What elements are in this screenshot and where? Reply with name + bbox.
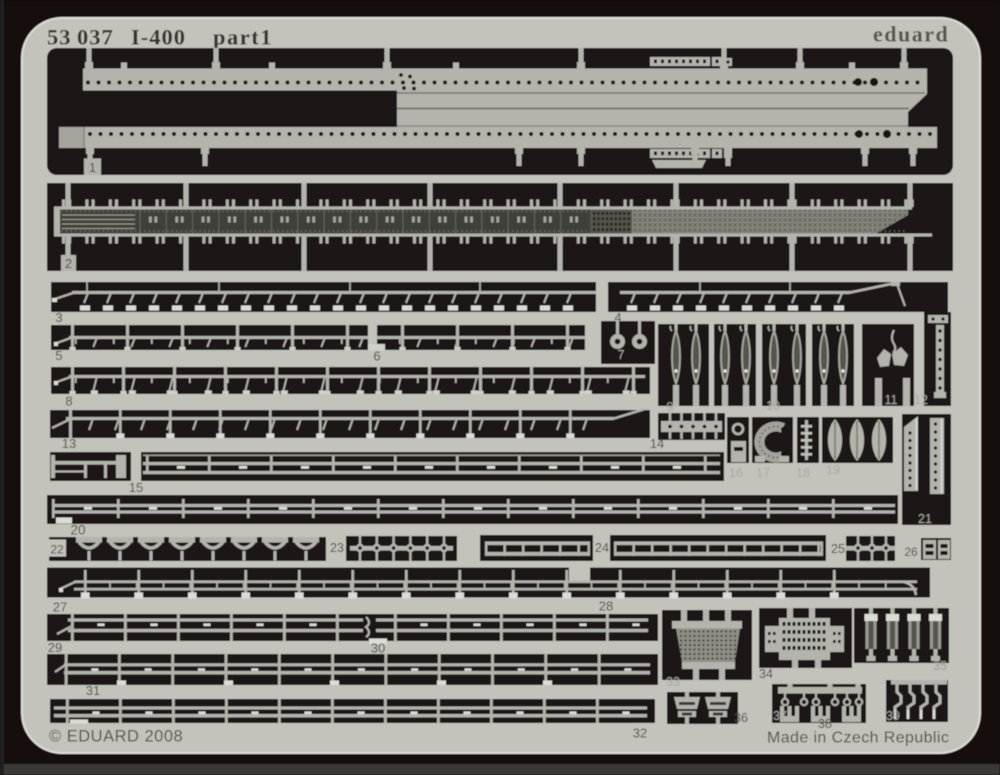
svg-text:26: 26 [904, 545, 918, 559]
svg-text:21: 21 [918, 512, 932, 526]
svg-text:12: 12 [914, 393, 928, 407]
svg-text:eduard: eduard [873, 22, 949, 47]
svg-text:36: 36 [734, 711, 748, 725]
svg-text:15: 15 [129, 480, 143, 495]
svg-text:24: 24 [595, 541, 609, 555]
svg-text:32: 32 [633, 726, 647, 741]
svg-text:35: 35 [933, 659, 947, 673]
svg-text:27: 27 [53, 600, 67, 615]
svg-text:33: 33 [666, 675, 680, 689]
svg-text:28: 28 [599, 599, 613, 614]
svg-text:I-400: I-400 [131, 25, 186, 50]
svg-text:5: 5 [55, 348, 62, 363]
svg-text:31: 31 [86, 683, 100, 698]
svg-text:10: 10 [766, 399, 780, 413]
svg-text:13: 13 [62, 436, 76, 451]
svg-text:8: 8 [65, 394, 72, 409]
svg-text:22: 22 [50, 543, 64, 557]
svg-text:18: 18 [796, 466, 810, 480]
svg-text:© EDUARD 2008: © EDUARD 2008 [49, 728, 183, 746]
svg-text:23: 23 [330, 541, 344, 555]
svg-text:39: 39 [886, 709, 900, 723]
svg-text:17: 17 [756, 466, 770, 480]
svg-text:6: 6 [373, 349, 380, 364]
svg-text:2: 2 [65, 256, 72, 271]
svg-text:9: 9 [667, 400, 674, 414]
svg-text:30: 30 [371, 641, 385, 656]
svg-text:1: 1 [89, 160, 96, 175]
svg-text:16: 16 [729, 466, 743, 480]
svg-text:14: 14 [650, 436, 664, 451]
svg-text:37: 37 [773, 709, 787, 723]
svg-text:part1: part1 [213, 25, 273, 50]
svg-text:3: 3 [55, 310, 62, 325]
svg-text:29: 29 [48, 640, 62, 655]
svg-text:11: 11 [885, 393, 898, 407]
svg-text:34: 34 [759, 667, 773, 681]
svg-text:7: 7 [618, 348, 625, 362]
svg-text:38: 38 [818, 717, 832, 731]
svg-text:19: 19 [826, 463, 840, 477]
svg-text:Made in Czech Republic: Made in Czech Republic [767, 730, 949, 747]
svg-text:25: 25 [831, 542, 845, 556]
svg-text:53 037: 53 037 [47, 25, 114, 50]
svg-text:20: 20 [70, 523, 85, 538]
